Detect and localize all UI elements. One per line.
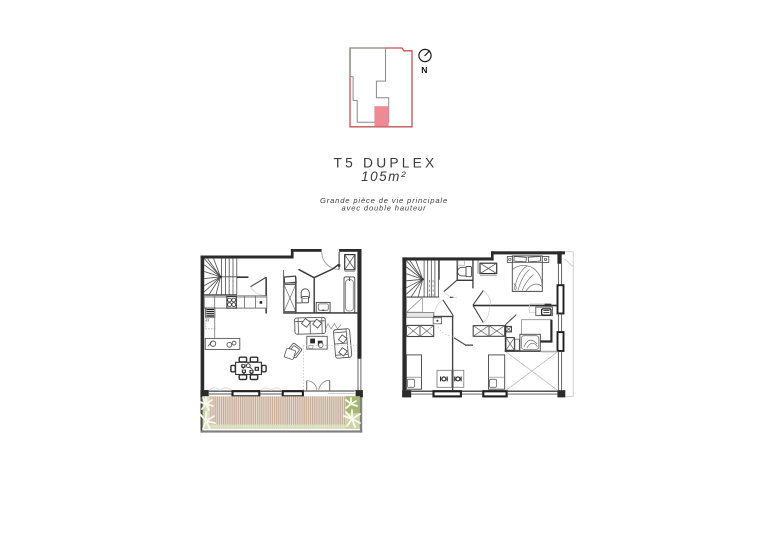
svg-text:avec double hauteur: avec double hauteur	[342, 204, 427, 213]
svg-text:105m²: 105m²	[361, 169, 407, 184]
svg-text:N: N	[421, 65, 427, 75]
